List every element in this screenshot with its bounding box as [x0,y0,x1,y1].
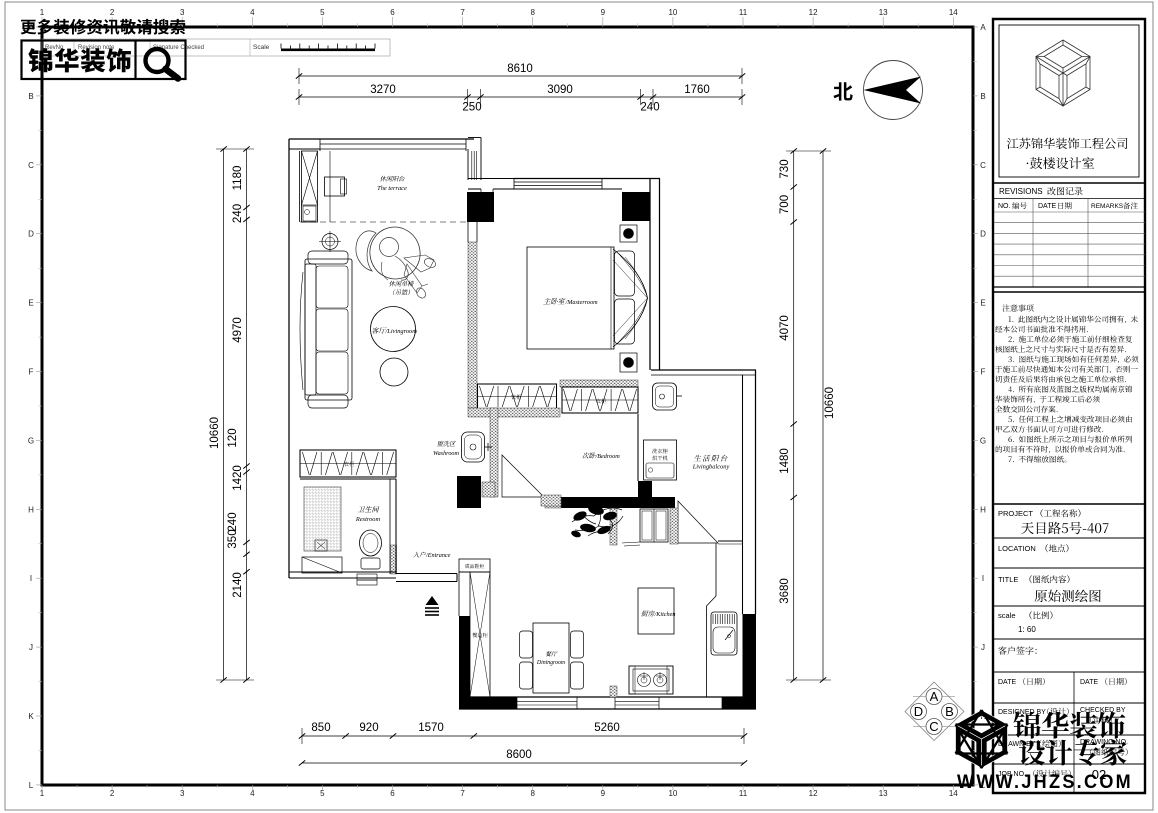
svg-text:13: 13 [879,8,888,17]
svg-text:A: A [930,689,939,704]
svg-text:G: G [28,436,34,445]
svg-text:WWW.JHZS.COM: WWW.JHZS.COM [957,771,1133,793]
svg-text:D: D [28,230,34,239]
svg-text:1760: 1760 [684,84,710,96]
svg-text:9: 9 [601,8,606,17]
svg-text:240: 240 [640,102,659,114]
svg-text:11: 11 [739,789,748,798]
svg-text:I: I [30,574,32,583]
svg-text:NO.: NO. [998,203,1011,210]
svg-text:10: 10 [668,8,677,17]
svg-text:12: 12 [809,8,818,17]
svg-text:TITLE: TITLE [998,575,1018,584]
svg-text:/Kitchen: /Kitchen [654,611,676,618]
svg-text:12: 12 [809,789,818,798]
svg-text:DATE: DATE [1080,679,1098,686]
svg-text:10660: 10660 [209,417,221,449]
svg-text:/Bedroom: /Bedroom [595,453,621,460]
svg-text:8: 8 [530,8,535,17]
svg-text:850: 850 [311,722,330,734]
svg-text:4070: 4070 [779,315,791,341]
svg-text:3090: 3090 [547,84,573,96]
svg-text:350: 350 [227,529,239,548]
svg-text:920: 920 [359,722,378,734]
svg-text:8: 8 [530,789,535,798]
svg-text:F: F [981,368,986,377]
svg-text:8600: 8600 [506,749,532,761]
svg-text:120: 120 [227,428,239,447]
svg-text:730: 730 [779,159,791,178]
svg-text:Scale: Scale [253,44,270,51]
svg-text:Livingbalcony: Livingbalcony [692,464,730,471]
svg-text:C: C [980,161,986,170]
svg-text:Washroom: Washroom [433,450,460,457]
svg-text:DATE: DATE [998,679,1016,686]
svg-text:240: 240 [232,204,244,223]
svg-text:/Entrance: /Entrance [425,552,451,559]
svg-text:/Livingroom: /Livingroom [385,328,418,335]
svg-text:K: K [28,712,34,721]
svg-text:Diningroom: Diningroom [536,660,565,666]
svg-text:B: B [945,704,954,719]
svg-text:10660: 10660 [824,387,836,419]
svg-text:3680: 3680 [779,578,791,604]
svg-text:3: 3 [180,8,185,17]
svg-text:H: H [28,505,34,514]
svg-text:14: 14 [949,8,958,17]
svg-text:2: 2 [110,8,115,17]
svg-text:The terrace: The terrace [377,185,407,192]
svg-text:3270: 3270 [370,84,396,96]
svg-text:D: D [980,230,986,239]
svg-text:/Masterroom: /Masterroom [565,299,599,306]
svg-text:G: G [980,436,986,445]
svg-text:700: 700 [779,195,791,214]
svg-text:1: 60: 1: 60 [1018,625,1036,634]
svg-text:5: 5 [320,789,325,798]
svg-text:LOCATION: LOCATION [998,544,1036,553]
svg-text:6: 6 [390,789,395,798]
svg-text:11: 11 [739,8,748,17]
svg-text:B: B [28,92,33,101]
svg-text:D: D [914,704,923,719]
svg-text:DATE: DATE [1038,203,1056,210]
svg-text:Restroom: Restroom [355,516,381,523]
svg-text:J: J [29,643,33,652]
svg-text:3: 3 [180,789,185,798]
svg-text:9: 9 [601,789,606,798]
svg-text:REVISIONS: REVISIONS [999,187,1043,196]
svg-text:1: 1 [40,8,45,17]
svg-text:5260: 5260 [594,722,620,734]
svg-text:4970: 4970 [232,317,244,343]
svg-text:H: H [980,505,986,514]
svg-text:L: L [29,781,34,790]
svg-text:2: 2 [110,789,115,798]
svg-text:J: J [981,643,985,652]
svg-text:1570: 1570 [418,722,444,734]
svg-text:C: C [929,719,938,734]
svg-text:B: B [980,92,985,101]
svg-text:10: 10 [668,789,677,798]
svg-text:C: C [28,161,34,170]
svg-text:A: A [980,23,986,32]
svg-text:1480: 1480 [779,448,791,474]
svg-text:1420: 1420 [232,465,244,491]
svg-text:F: F [29,368,34,377]
svg-text:scale: scale [998,611,1016,620]
svg-text:E: E [980,299,985,308]
svg-text:I: I [982,574,984,583]
svg-text:1180: 1180 [232,166,244,191]
svg-text:7: 7 [460,8,465,17]
svg-text:4: 4 [250,8,255,17]
svg-text:REMARKS: REMARKS [1091,203,1124,210]
svg-text:2140: 2140 [232,572,244,598]
svg-text:6: 6 [390,8,395,17]
svg-text:240: 240 [227,512,239,531]
svg-text:250: 250 [462,102,481,114]
svg-text:PROJECT: PROJECT [998,509,1033,518]
svg-text:4: 4 [250,789,255,798]
svg-text:E: E [28,299,33,308]
svg-text:13: 13 [879,789,888,798]
svg-text:7: 7 [460,789,465,798]
svg-text:8610: 8610 [507,63,533,75]
svg-text:5: 5 [320,8,325,17]
svg-text:1: 1 [40,789,45,798]
